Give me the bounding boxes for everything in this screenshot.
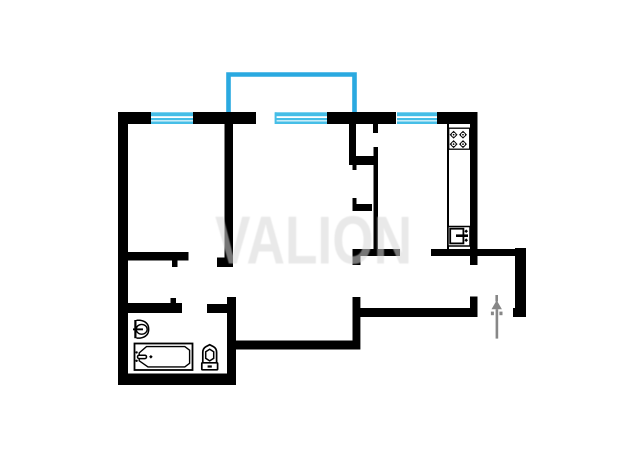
svg-text:VALION: VALION <box>215 203 412 279</box>
